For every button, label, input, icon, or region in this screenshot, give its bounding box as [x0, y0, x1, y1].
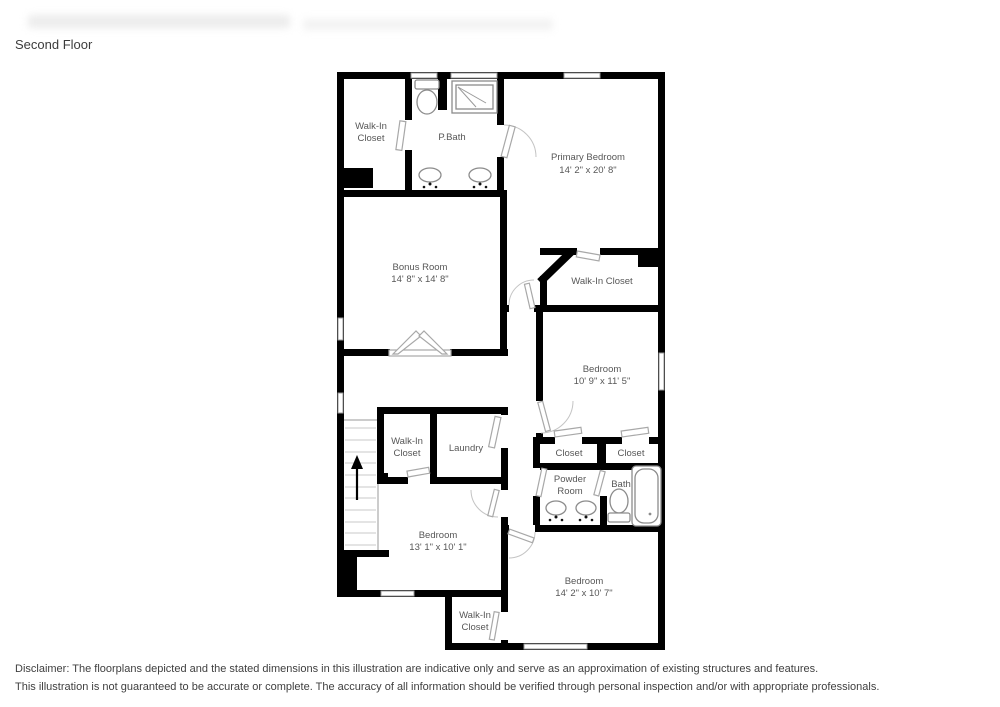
- powder-room-label: Powder: [554, 474, 586, 485]
- bedroom-bottom-right-label: Bedroom: [565, 576, 604, 587]
- window: [451, 73, 497, 78]
- shower-icon: [452, 81, 497, 113]
- bedroom-bottom-left-label: Bedroom: [419, 530, 458, 541]
- sink-icon: [419, 168, 441, 188]
- walk-in-closet-mid-label: Walk-In: [391, 436, 423, 447]
- bedroom-right-dims: 10' 9" x 11' 5": [574, 376, 631, 387]
- bathtub-icon: [632, 466, 661, 526]
- door: [489, 416, 501, 448]
- laundry-label: Laundry: [449, 443, 484, 454]
- stairs: [344, 420, 378, 550]
- door: [488, 489, 499, 516]
- bedroom-bottom-right-dims: 14' 2" x 10' 7": [555, 588, 612, 599]
- window: [338, 393, 343, 413]
- closet-left-label: Closet: [556, 448, 583, 459]
- walk-in-closet-top-label: Closet: [358, 133, 385, 144]
- sink-icon: [546, 501, 566, 521]
- door: [396, 121, 406, 151]
- room-labels: Walk-In Closet P.Bath Primary Bedroom 14…: [355, 121, 645, 633]
- primary-bedroom-label: Primary Bedroom: [551, 152, 625, 163]
- sink-icon: [576, 501, 596, 521]
- primary-bath-label: P.Bath: [438, 132, 465, 143]
- window: [338, 318, 343, 340]
- window: [564, 73, 600, 78]
- door: [524, 283, 534, 308]
- powder-room-label: Room: [557, 486, 582, 497]
- disclaimer-line-1: Disclaimer: The floorplans depicted and …: [15, 663, 818, 675]
- stairs-up-arrow-icon: [351, 455, 363, 500]
- door: [554, 427, 582, 437]
- bonus-room-dims: 14' 8" x 14' 8": [391, 274, 448, 285]
- door: [407, 467, 430, 477]
- window: [411, 73, 437, 78]
- bath-label: Bath: [611, 479, 631, 490]
- toilet-icon: [608, 489, 630, 522]
- closet-right-label: Closet: [618, 448, 645, 459]
- toilet-icon: [415, 80, 439, 114]
- bedroom-right-label: Bedroom: [583, 364, 622, 375]
- bedroom-bottom-left-dims: 13' 1" x 10' 1": [409, 542, 466, 553]
- floor-plan: Walk-In Closet P.Bath Primary Bedroom 14…: [0, 0, 1000, 707]
- disclaimer-line-2: This illustration is not guaranteed to b…: [15, 681, 879, 693]
- window: [381, 591, 414, 596]
- floorplan-page: Second Floor: [0, 0, 1000, 707]
- window: [524, 644, 587, 649]
- walk-in-closet-mid-label: Closet: [394, 448, 421, 459]
- walk-in-closet-bottom-label: Walk-In: [459, 610, 491, 621]
- walk-in-closet-right-label: Walk-In Closet: [571, 276, 633, 287]
- door: [621, 427, 649, 437]
- walk-in-closet-top-label: Walk-In: [355, 121, 387, 132]
- window: [659, 353, 664, 390]
- sink-icon: [469, 168, 491, 188]
- walk-in-closet-bottom-label: Closet: [462, 622, 489, 633]
- bonus-room-label: Bonus Room: [393, 262, 448, 273]
- primary-bedroom-dims: 14' 2" x 20' 8": [559, 165, 616, 176]
